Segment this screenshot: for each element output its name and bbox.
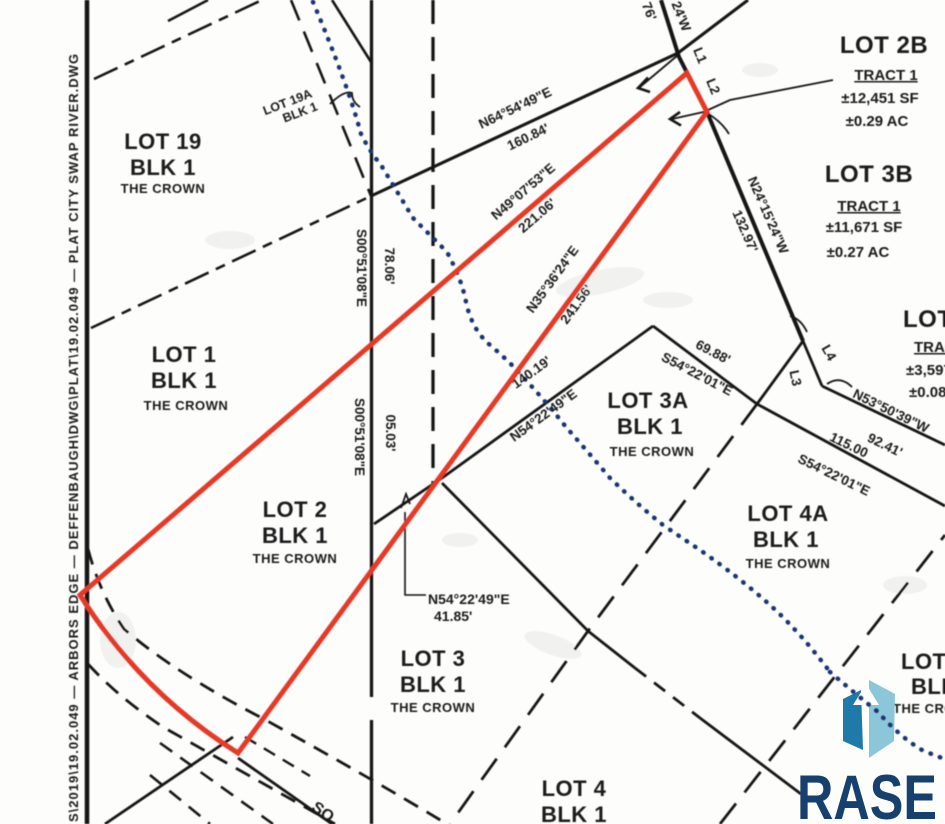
svg-text:±3,597 SF: ±3,597 SF [906,362,945,379]
svg-text:THE CROWN: THE CROWN [893,701,945,716]
svg-text:LOT 3B: LOT 3B [825,161,913,188]
svg-text:±0.29 AC: ±0.29 AC [846,113,909,130]
svg-text:LOT 19: LOT 19 [124,129,202,154]
svg-text:LOT 2B: LOT 2B [840,32,928,59]
svg-text:THE CROWN: THE CROWN [391,700,476,715]
svg-text:LOT 4: LOT 4 [542,776,607,801]
svg-text:BLK 1: BLK 1 [541,802,607,824]
svg-text:78.06': 78.06' [382,248,397,285]
svg-text:LOT 3: LOT 3 [401,646,466,671]
svg-text:LOT 4A: LOT 4A [747,501,828,526]
svg-text:BLK 1: BLK 1 [617,414,683,439]
svg-text:THE CROWN: THE CROWN [610,444,695,459]
svg-text:TRACT 1: TRACT 1 [914,339,945,356]
svg-text:THE CROWN: THE CROWN [121,181,206,196]
svg-text:THE CROWN: THE CROWN [253,551,338,566]
svg-text:TRACT 1: TRACT 1 [837,198,900,215]
svg-text:LOT 4B: LOT 4B [903,306,945,333]
svg-text:S00°51'08"E: S00°51'08"E [352,398,367,476]
svg-text:BLK 1: BLK 1 [911,674,945,699]
svg-text:TRACT 1: TRACT 1 [854,67,917,84]
svg-text:BLK 1: BLK 1 [262,523,328,548]
svg-text:LOT 1: LOT 1 [152,342,217,367]
svg-text:BLK 1: BLK 1 [151,368,217,393]
svg-text:±11,671 SF: ±11,671 SF [826,219,903,236]
svg-text:S00°51'08"E: S00°51'08"E [354,229,369,307]
svg-text:S\2019\19.02.049 — ARBORS EDGE: S\2019\19.02.049 — ARBORS EDGE — DEFFENB… [66,53,81,822]
svg-text:±12,451 SF: ±12,451 SF [841,90,918,107]
svg-text:05.03': 05.03' [383,415,398,452]
svg-text:LOT 2: LOT 2 [263,497,328,522]
svg-text:N54°22'49"E: N54°22'49"E [428,591,510,607]
svg-text:BLK 1: BLK 1 [130,155,196,180]
svg-text:THE CROWN: THE CROWN [144,398,229,413]
svg-text:41.85': 41.85' [434,608,472,624]
svg-text:LOT 3A: LOT 3A [607,388,688,413]
svg-text:THE CROWN: THE CROWN [746,556,831,571]
svg-text:LOT 5: LOT 5 [901,649,945,674]
svg-text:BLK 1: BLK 1 [400,672,466,697]
svg-text:RASE: RASE [797,763,937,824]
svg-text:BLK 1: BLK 1 [753,527,819,552]
svg-text:±0.08 AC: ±0.08 AC [909,384,945,401]
svg-text:±0.27 AC: ±0.27 AC [827,244,890,261]
